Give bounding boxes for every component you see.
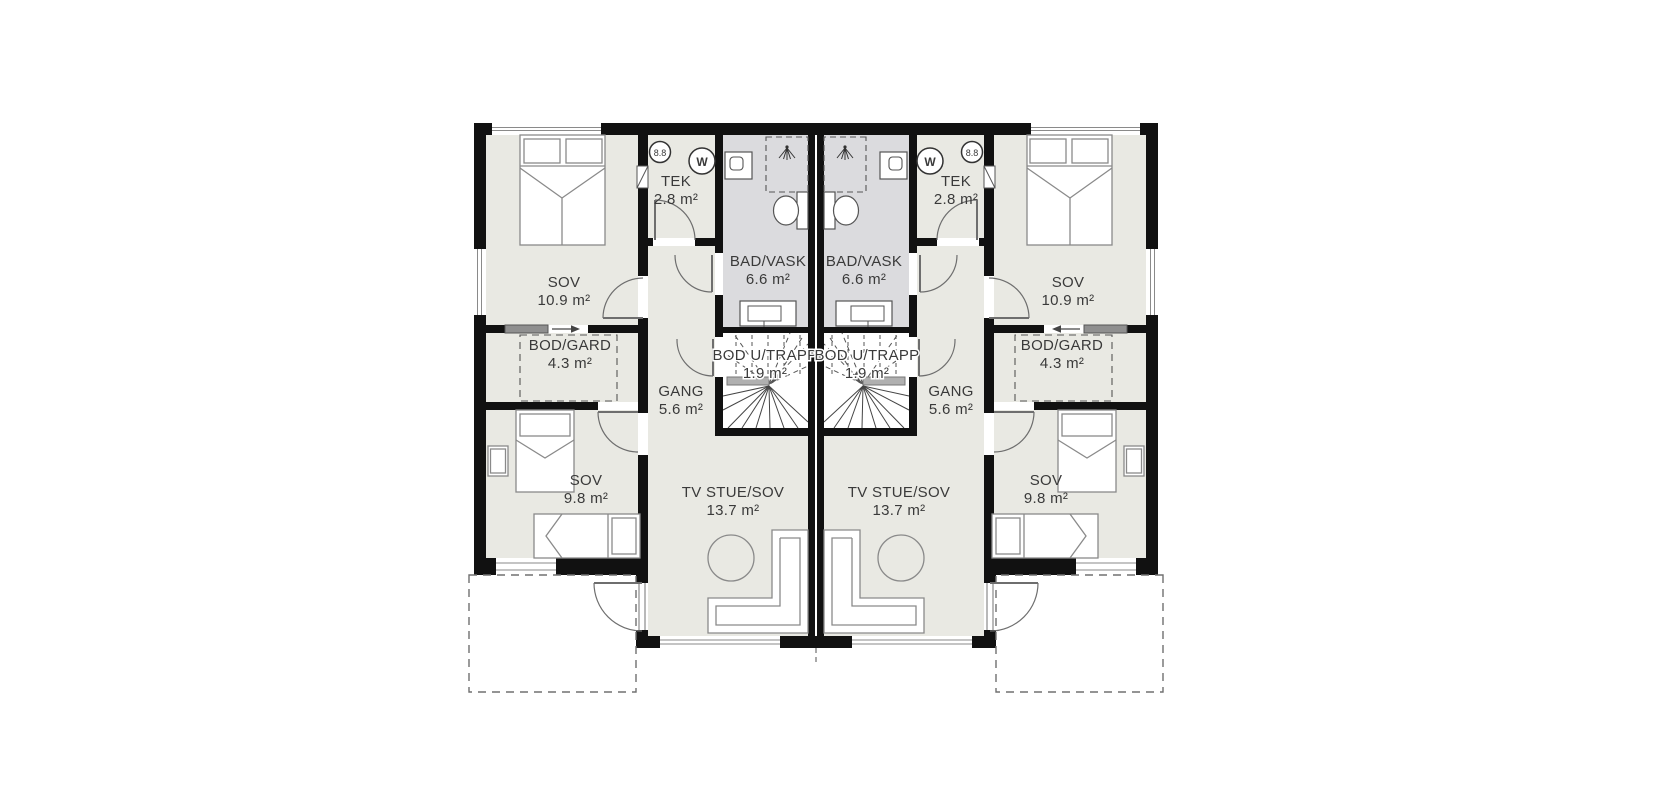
room-label-name: BAD/VASK [730, 253, 806, 270]
room-label-name: BOD U/TRAPP [713, 347, 818, 364]
room-label-area: 1.9 m² [845, 365, 889, 382]
room-label-area: 1.9 m² [743, 365, 787, 382]
room-label-area: 10.9 m² [538, 292, 591, 309]
room-label-name: SOV [1052, 274, 1085, 291]
room-label-area: 5.6 m² [659, 401, 703, 418]
room-label-name: BOD/GARD [529, 337, 611, 354]
floor-plan-page: SOV 10.9 m² TEK 2.8 m² BAD/VASK 6.6 m² B… [0, 0, 1670, 800]
room-label-area: 13.7 m² [873, 502, 926, 519]
washing-machine-label-right: W [924, 155, 936, 169]
room-label-area: 13.7 m² [707, 502, 760, 519]
room-label-area: 5.6 m² [929, 401, 973, 418]
room-label-name: BOD/GARD [1021, 337, 1103, 354]
room-label-area: 9.8 m² [1024, 490, 1068, 507]
room-label-name: SOV [548, 274, 581, 291]
room-label-area: 4.3 m² [1040, 355, 1084, 372]
room-label-name: BOD U/TRAPP [815, 347, 920, 364]
water-heater-label-right: 8.8 [966, 148, 979, 158]
room-label-name: SOV [570, 472, 603, 489]
room-label-name: TV STUE/SOV [848, 484, 951, 501]
room-label-name: TEK [661, 173, 691, 190]
room-label-area: 10.9 m² [1042, 292, 1095, 309]
room-label-sov-small-right: SOV 9.8 m² [1024, 472, 1068, 507]
room-label-area: 9.8 m² [564, 490, 608, 507]
room-label-name: SOV [1030, 472, 1063, 489]
water-heater-label-left: 8.8 [654, 148, 667, 158]
room-label-area: 2.8 m² [934, 191, 978, 208]
washing-machine-label-left: W [696, 155, 708, 169]
room-label-name: BAD/VASK [826, 253, 902, 270]
room-label-gang-left: GANG 5.6 m² [658, 383, 703, 418]
room-label-name: TV STUE/SOV [682, 484, 785, 501]
room-label-sov-small-left: SOV 9.8 m² [564, 472, 608, 507]
room-label-name: GANG [658, 383, 703, 400]
room-label-area: 6.6 m² [842, 271, 886, 288]
floor-plan-canvas: SOV 10.9 m² TEK 2.8 m² BAD/VASK 6.6 m² B… [0, 0, 1670, 800]
room-label-area: 2.8 m² [654, 191, 698, 208]
room-label-name: GANG [928, 383, 973, 400]
room-label-area: 4.3 m² [548, 355, 592, 372]
room-label-area: 6.6 m² [746, 271, 790, 288]
room-label-gang-right: GANG 5.6 m² [928, 383, 973, 418]
room-label-name: TEK [941, 173, 971, 190]
